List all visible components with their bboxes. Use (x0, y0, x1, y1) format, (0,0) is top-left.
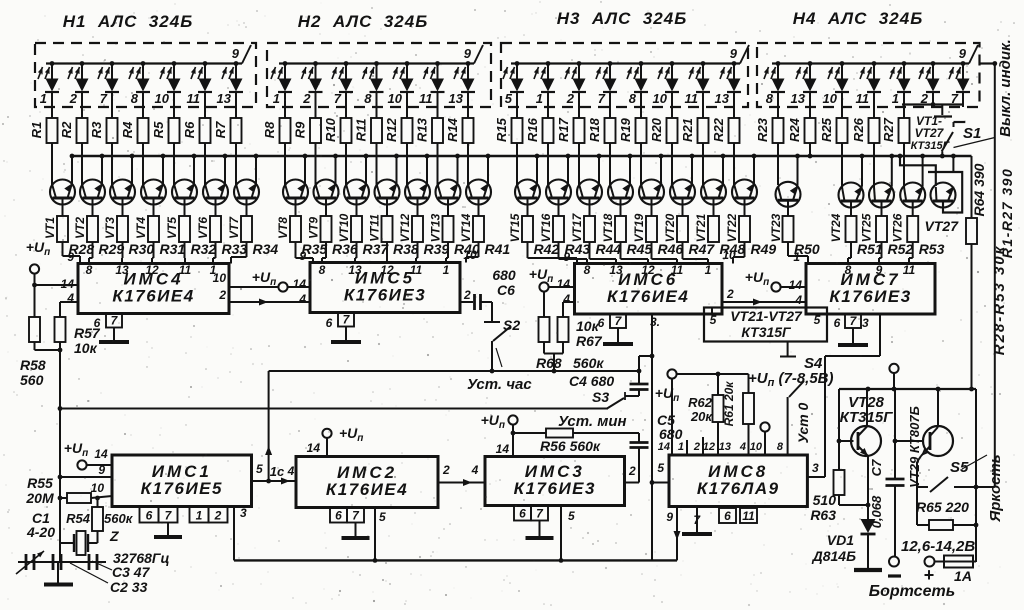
svg-text:5: 5 (568, 509, 575, 523)
svg-text:510: 510 (813, 492, 837, 508)
svg-text:11: 11 (856, 91, 870, 106)
svg-text:20к: 20к (690, 409, 713, 424)
svg-text:11: 11 (903, 263, 916, 277)
svg-text:VT19: VT19 (632, 213, 646, 242)
svg-text:К176ИЕ4: К176ИЕ4 (607, 287, 689, 306)
svg-text:R20: R20 (649, 117, 664, 142)
svg-text:VT14: VT14 (459, 213, 473, 242)
svg-text:VT10: VT10 (337, 213, 351, 242)
svg-text:6: 6 (724, 509, 731, 523)
svg-text:560: 560 (20, 372, 44, 388)
svg-text:VT12: VT12 (398, 213, 412, 242)
svg-text:4-20: 4-20 (26, 524, 55, 540)
svg-text:Д814Б: Д814Б (812, 548, 856, 564)
svg-text:2: 2 (463, 288, 471, 302)
svg-text:К176ИЕ3: К176ИЕ3 (829, 287, 911, 306)
svg-text:VT27: VT27 (915, 126, 945, 140)
svg-text:R45: R45 (627, 241, 653, 257)
svg-text:VT20: VT20 (663, 213, 677, 242)
svg-text:4: 4 (298, 292, 306, 306)
svg-text:0,068: 0,068 (869, 495, 884, 528)
svg-text:2: 2 (693, 441, 700, 453)
svg-text:R15: R15 (494, 117, 509, 142)
svg-text:С3 47: С3 47 (112, 564, 151, 580)
svg-text:2: 2 (69, 91, 78, 106)
svg-text:VT11: VT11 (368, 214, 382, 242)
svg-text:R1: R1 (29, 122, 44, 139)
svg-text:VT17: VT17 (570, 212, 584, 242)
svg-text:VT5: VT5 (165, 217, 179, 239)
svg-text:11: 11 (742, 509, 755, 523)
svg-text:R42: R42 (534, 241, 560, 257)
svg-text:7: 7 (334, 91, 342, 106)
svg-text:3: 3 (812, 461, 819, 475)
svg-text:12,6-14,2В: 12,6-14,2В (901, 538, 975, 555)
svg-text:Н4 АЛС 324Б: Н4 АЛС 324Б (793, 9, 923, 28)
svg-text:R31: R31 (160, 241, 186, 257)
svg-text:К176ИЕ4: К176ИЕ4 (326, 480, 408, 499)
svg-text:6: 6 (335, 509, 342, 523)
svg-text:Бортсеть: Бортсеть (869, 583, 955, 600)
svg-text:R13: R13 (415, 117, 430, 142)
svg-text:14: 14 (789, 278, 803, 292)
svg-text:+Uп (7-8,5В): +Uп (7-8,5В) (748, 370, 834, 389)
svg-text:2: 2 (214, 509, 222, 523)
svg-text:6: 6 (598, 316, 605, 330)
svg-text:14: 14 (307, 441, 321, 455)
svg-text:КТ315Г: КТ315Г (741, 324, 792, 340)
svg-text:R19: R19 (618, 117, 633, 142)
svg-text:VT21: VT21 (694, 213, 708, 242)
svg-text:R5: R5 (151, 121, 166, 138)
svg-text:6: 6 (834, 316, 841, 330)
svg-text:9: 9 (232, 46, 240, 61)
svg-text:R36: R36 (332, 241, 358, 257)
svg-text:VT24: VT24 (829, 213, 843, 242)
svg-text:1: 1 (678, 441, 684, 453)
svg-text:8: 8 (584, 263, 591, 277)
svg-text:R49: R49 (751, 241, 777, 257)
svg-text:8: 8 (86, 263, 93, 277)
svg-text:VT15: VT15 (508, 213, 522, 242)
svg-text:Уст 0: Уст 0 (795, 402, 811, 443)
svg-text:4: 4 (739, 441, 746, 453)
svg-text:9: 9 (959, 46, 967, 61)
svg-text:VT13: VT13 (429, 213, 443, 242)
svg-text:10: 10 (388, 91, 403, 106)
svg-text:680: 680 (659, 426, 683, 442)
svg-text:VT21-VT27: VT21-VT27 (730, 308, 803, 324)
svg-text:14: 14 (293, 277, 307, 291)
svg-text:560к: 560к (104, 511, 134, 526)
svg-text:1: 1 (793, 250, 800, 264)
svg-text:К176ИЕ4: К176ИЕ4 (112, 287, 194, 306)
svg-text:11: 11 (419, 91, 433, 106)
svg-text:Выкл. индик.: Выкл. индик. (997, 39, 1014, 137)
svg-text:R21: R21 (680, 118, 695, 142)
svg-text:R38: R38 (393, 241, 419, 257)
svg-text:Z: Z (109, 528, 119, 544)
svg-text:S2: S2 (503, 317, 520, 333)
svg-text:R34: R34 (253, 241, 279, 257)
svg-text:Уст. час: Уст. час (467, 376, 532, 393)
svg-text:9: 9 (299, 249, 306, 263)
svg-text:R51: R51 (857, 241, 883, 257)
svg-text:R65 220: R65 220 (916, 499, 969, 515)
svg-text:VT2: VT2 (73, 217, 87, 239)
svg-text:VT23: VT23 (769, 213, 783, 242)
svg-text:Яркость: Яркость (987, 454, 1004, 523)
svg-text:1: 1 (40, 91, 47, 106)
svg-text:VT7: VT7 (227, 216, 241, 239)
svg-text:10к: 10к (576, 318, 600, 334)
svg-text:R53: R53 (919, 241, 945, 257)
svg-text:К176ИЕ5: К176ИЕ5 (141, 479, 223, 498)
svg-text:9: 9 (563, 250, 570, 264)
svg-text:13: 13 (719, 441, 731, 453)
svg-text:R27: R27 (881, 117, 896, 142)
svg-text:R68: R68 (536, 355, 562, 371)
svg-text:R28-R53 30к: R28-R53 30к (991, 245, 1008, 355)
svg-text:3: 3 (862, 316, 869, 330)
svg-text:VT9: VT9 (307, 217, 321, 239)
svg-text:5: 5 (256, 462, 263, 476)
svg-text:VT4: VT4 (134, 217, 148, 239)
svg-text:R52: R52 (888, 241, 914, 257)
svg-text:R56 560к: R56 560к (540, 438, 601, 454)
svg-text:R6: R6 (182, 121, 197, 138)
svg-text:11: 11 (187, 91, 201, 106)
svg-text:К176ИЕ3: К176ИЕ3 (514, 479, 596, 498)
svg-text:6: 6 (326, 316, 333, 330)
svg-text:VT3: VT3 (103, 217, 117, 239)
svg-text:560к: 560к (573, 355, 604, 371)
svg-text:R64 390: R64 390 (971, 163, 987, 216)
svg-text:S3: S3 (592, 389, 609, 405)
svg-text:VT22: VT22 (725, 213, 739, 242)
svg-text:10: 10 (91, 481, 105, 495)
svg-text:14: 14 (496, 442, 510, 456)
svg-text:R47: R47 (689, 241, 716, 257)
svg-text:VT16: VT16 (539, 213, 553, 242)
svg-text:2: 2 (302, 91, 311, 106)
svg-text:R14: R14 (445, 117, 460, 142)
svg-text:9: 9 (666, 510, 673, 524)
svg-text:5: 5 (379, 510, 386, 524)
svg-text:2: 2 (566, 91, 575, 106)
svg-text:9: 9 (730, 46, 738, 61)
svg-text:R46: R46 (658, 241, 684, 257)
svg-text:R23: R23 (755, 117, 770, 142)
svg-text:R22: R22 (711, 117, 726, 142)
svg-text:1с: 1с (270, 464, 285, 479)
svg-text:Н2 АЛС 324Б: Н2 АЛС 324Б (298, 12, 428, 31)
svg-text:9: 9 (464, 46, 472, 61)
svg-text:13: 13 (217, 91, 232, 106)
svg-text:VT8: VT8 (276, 217, 290, 239)
svg-text:VT27: VT27 (925, 218, 960, 234)
svg-text:13: 13 (449, 91, 464, 106)
svg-text:R3: R3 (89, 121, 104, 138)
svg-text:14: 14 (557, 277, 571, 291)
svg-text:С4 680: С4 680 (569, 373, 614, 389)
svg-text:8: 8 (319, 263, 326, 277)
svg-text:R63: R63 (810, 507, 836, 523)
svg-text:R44: R44 (596, 241, 622, 257)
svg-text:R4: R4 (120, 121, 135, 138)
svg-text:9: 9 (98, 463, 105, 477)
svg-text:1: 1 (443, 263, 450, 277)
svg-text:VT26: VT26 (891, 213, 905, 242)
svg-text:1: 1 (273, 91, 280, 106)
svg-text:VT1: VT1 (43, 217, 57, 239)
svg-text:7: 7 (598, 91, 606, 106)
svg-text:КТ315Г: КТ315Г (911, 140, 951, 152)
svg-text:12: 12 (703, 441, 715, 453)
svg-text:10: 10 (823, 91, 838, 106)
svg-text:R33: R33 (222, 241, 248, 257)
svg-text:VT6: VT6 (196, 217, 210, 239)
svg-text:680: 680 (492, 267, 516, 283)
svg-text:VT25: VT25 (860, 213, 874, 242)
svg-text:6: 6 (146, 509, 153, 523)
svg-text:R54: R54 (66, 511, 91, 526)
svg-text:R30: R30 (129, 241, 155, 257)
svg-text:Уст. мин: Уст. мин (558, 413, 627, 430)
svg-text:С2 33: С2 33 (110, 579, 148, 595)
svg-text:R9: R9 (293, 121, 308, 138)
svg-text:14: 14 (94, 447, 108, 461)
svg-text:R41: R41 (485, 241, 511, 257)
svg-text:R25: R25 (819, 117, 834, 142)
svg-text:R1-R27 390: R1-R27 390 (999, 168, 1015, 259)
svg-text:R57: R57 (74, 325, 101, 341)
svg-text:5: 5 (505, 91, 513, 106)
svg-text:R24: R24 (787, 117, 802, 142)
svg-text:R62: R62 (688, 395, 713, 410)
svg-text:10: 10 (155, 91, 170, 106)
svg-text:9: 9 (67, 250, 74, 264)
svg-text:6: 6 (519, 507, 526, 521)
svg-text:1: 1 (705, 263, 712, 277)
svg-text:R11: R11 (354, 119, 369, 142)
svg-text:5: 5 (657, 461, 664, 475)
svg-text:R58: R58 (20, 357, 46, 373)
svg-text:10: 10 (463, 248, 477, 262)
svg-text:R32: R32 (191, 241, 217, 257)
svg-text:R37: R37 (363, 241, 390, 257)
svg-text:R10: R10 (323, 117, 338, 142)
svg-text:S1: S1 (963, 125, 981, 142)
svg-text:2: 2 (218, 288, 226, 302)
svg-text:С7: С7 (869, 459, 884, 476)
svg-text:R61 20к: R61 20к (722, 381, 736, 427)
svg-text:10: 10 (213, 271, 227, 285)
svg-text:R18: R18 (587, 117, 602, 142)
svg-text:20М: 20М (25, 490, 54, 506)
svg-text:1: 1 (536, 91, 543, 106)
svg-text:5: 5 (710, 313, 717, 327)
svg-text:R26: R26 (851, 117, 866, 142)
svg-text:+: + (924, 565, 935, 585)
svg-text:4: 4 (287, 464, 295, 478)
svg-text:S5: S5 (950, 459, 969, 476)
svg-text:R16: R16 (525, 117, 540, 142)
svg-text:1: 1 (892, 91, 899, 106)
svg-text:10к: 10к (74, 340, 98, 356)
svg-text:Н3 АЛС 324Б: Н3 АЛС 324Б (557, 9, 687, 28)
svg-text:14: 14 (658, 441, 670, 453)
svg-text:R55: R55 (27, 475, 53, 491)
svg-text:К176ИЕ3: К176ИЕ3 (344, 286, 426, 305)
svg-text:1А: 1А (954, 568, 972, 584)
svg-text:13: 13 (715, 91, 730, 106)
svg-text:С6: С6 (497, 282, 515, 298)
svg-text:R12: R12 (384, 117, 399, 142)
svg-text:8: 8 (629, 91, 637, 106)
svg-text:8: 8 (364, 91, 372, 106)
svg-text:R8: R8 (262, 121, 277, 138)
svg-text:Н1 АЛС 324Б: Н1 АЛС 324Б (63, 12, 193, 31)
svg-text:R67: R67 (576, 333, 603, 349)
svg-text:13: 13 (791, 91, 806, 106)
svg-text:R39: R39 (424, 241, 450, 257)
svg-text:8: 8 (777, 441, 784, 453)
svg-text:2: 2 (628, 464, 636, 478)
svg-text:К176ЛА9: К176ЛА9 (697, 479, 780, 498)
svg-text:3: 3 (240, 506, 247, 520)
svg-text:S4: S4 (804, 355, 823, 372)
svg-text:R7: R7 (213, 121, 228, 138)
svg-text:11: 11 (685, 91, 699, 106)
svg-text:R2: R2 (59, 121, 74, 138)
svg-text:VD1: VD1 (827, 532, 854, 548)
svg-text:4: 4 (471, 463, 479, 477)
svg-text:VT18: VT18 (601, 213, 615, 242)
svg-text:10: 10 (653, 91, 668, 106)
svg-text:R17: R17 (556, 117, 571, 142)
svg-text:2: 2 (442, 463, 450, 477)
svg-text:4: 4 (794, 293, 802, 307)
svg-text:1: 1 (196, 509, 203, 523)
